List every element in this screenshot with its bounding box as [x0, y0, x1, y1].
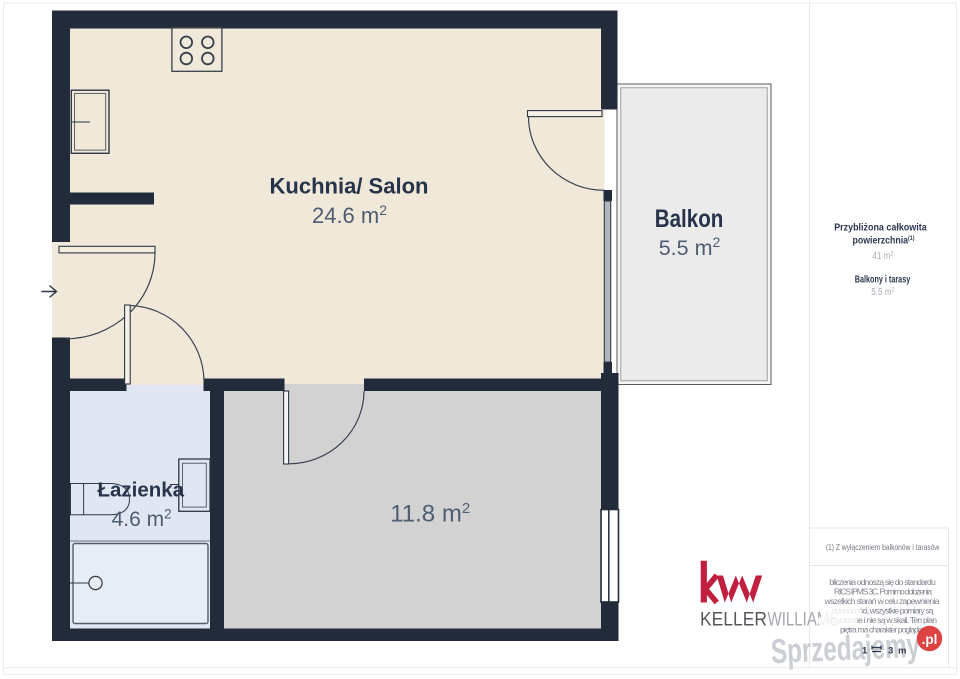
- svg-text:Balkony i tarasy: Balkony i tarasy: [855, 274, 911, 285]
- svg-text:KELLER: KELLER: [700, 609, 767, 630]
- svg-text:wszelkich starań w celu zapewn: wszelkich starań w celu zapewnienia: [824, 596, 940, 606]
- svg-text:powierzchnia(1): powierzchnia(1): [853, 236, 915, 247]
- svg-text:Przybliżona całkowita: Przybliżona całkowita: [834, 223, 927, 234]
- svg-text:Balkon: Balkon: [655, 205, 724, 233]
- svg-text:(1) Z wyłączeniem balkonów i t: (1) Z wyłączeniem balkonów i tarasów: [826, 542, 940, 552]
- svg-text:Łazienka: Łazienka: [97, 478, 184, 501]
- svg-text:5.5 m2: 5.5 m2: [871, 287, 894, 299]
- svg-text:1: 1: [862, 646, 868, 657]
- svg-text:Kuchnia/ Salon: Kuchnia/ Salon: [270, 174, 429, 199]
- svg-text:bliczenia odnoszą się do stand: bliczenia odnoszą się do standardu: [829, 577, 936, 587]
- svg-text:5.5 m2: 5.5 m2: [659, 234, 721, 260]
- svg-text:11.8 m2: 11.8 m2: [390, 500, 470, 528]
- svg-text:3: 3: [888, 646, 893, 657]
- svg-text:.pl: .pl: [922, 632, 938, 647]
- svg-text:m: m: [898, 646, 906, 657]
- svg-text:4.6 m2: 4.6 m2: [112, 506, 172, 531]
- svg-text:RICS IPMS 3C. Pomimo dołożenia: RICS IPMS 3C. Pomimo dołożenia: [834, 587, 932, 597]
- svg-text:24.6 m2: 24.6 m2: [312, 202, 387, 228]
